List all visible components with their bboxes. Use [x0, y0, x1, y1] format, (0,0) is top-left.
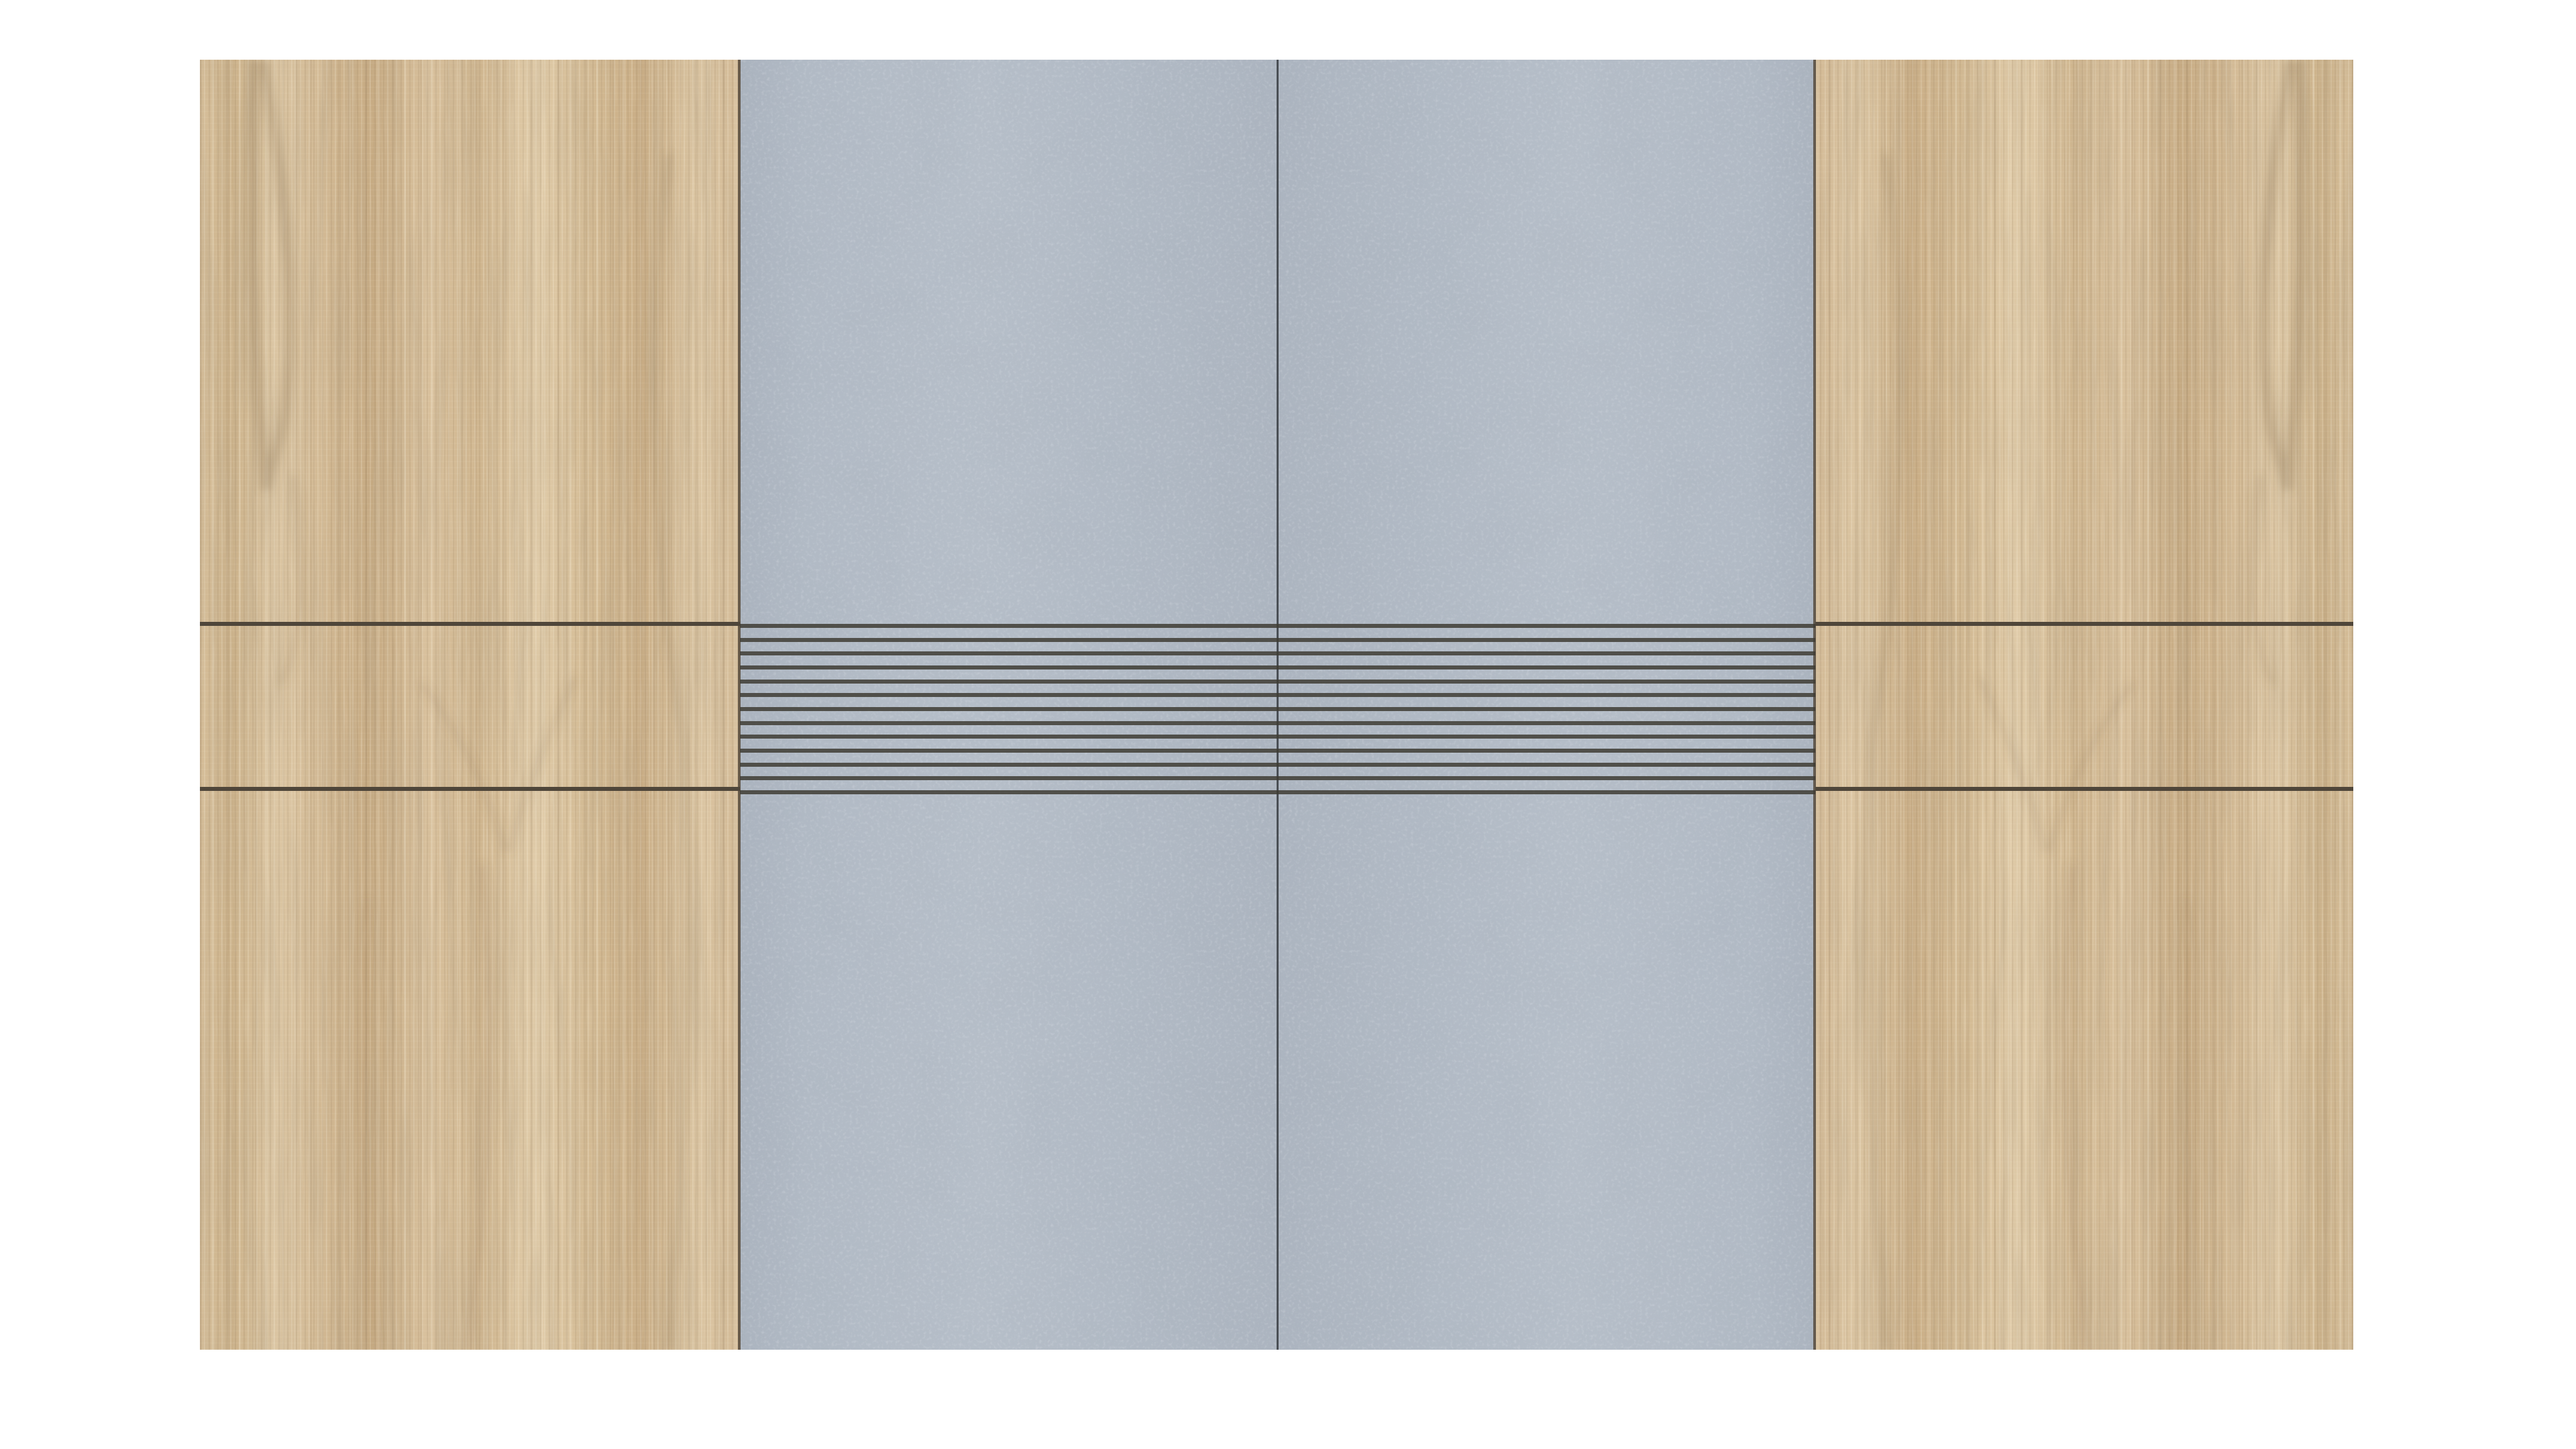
wood-groove-line	[1815, 787, 2353, 791]
slat-groove-line	[740, 680, 1815, 684]
slat-band	[740, 60, 1815, 1350]
slat-groove-line	[740, 763, 1815, 767]
slat-groove-line	[740, 707, 1815, 711]
wood-groove-line	[200, 787, 740, 791]
wood-groove-line	[200, 622, 740, 626]
slat-groove-line	[740, 790, 1815, 794]
left-wood-door-panel	[200, 60, 740, 1350]
product-image-canvas	[0, 0, 2576, 1449]
slat-groove-line	[740, 638, 1815, 642]
slat-groove-line	[740, 624, 1815, 628]
slat-groove-line	[740, 665, 1815, 669]
slat-groove-line	[740, 735, 1815, 739]
slat-groove-line	[740, 721, 1815, 725]
slat-groove-line	[740, 749, 1815, 753]
wood-grain-texture	[200, 60, 740, 1350]
slat-groove-line	[740, 776, 1815, 780]
wood-groove-line	[1815, 622, 2353, 626]
wood-grain-texture	[1815, 60, 2353, 1350]
slat-groove-line	[740, 651, 1815, 655]
slat-groove-line	[740, 693, 1815, 697]
right-wood-door-panel	[1815, 60, 2353, 1350]
sideboard-front	[200, 60, 2353, 1350]
